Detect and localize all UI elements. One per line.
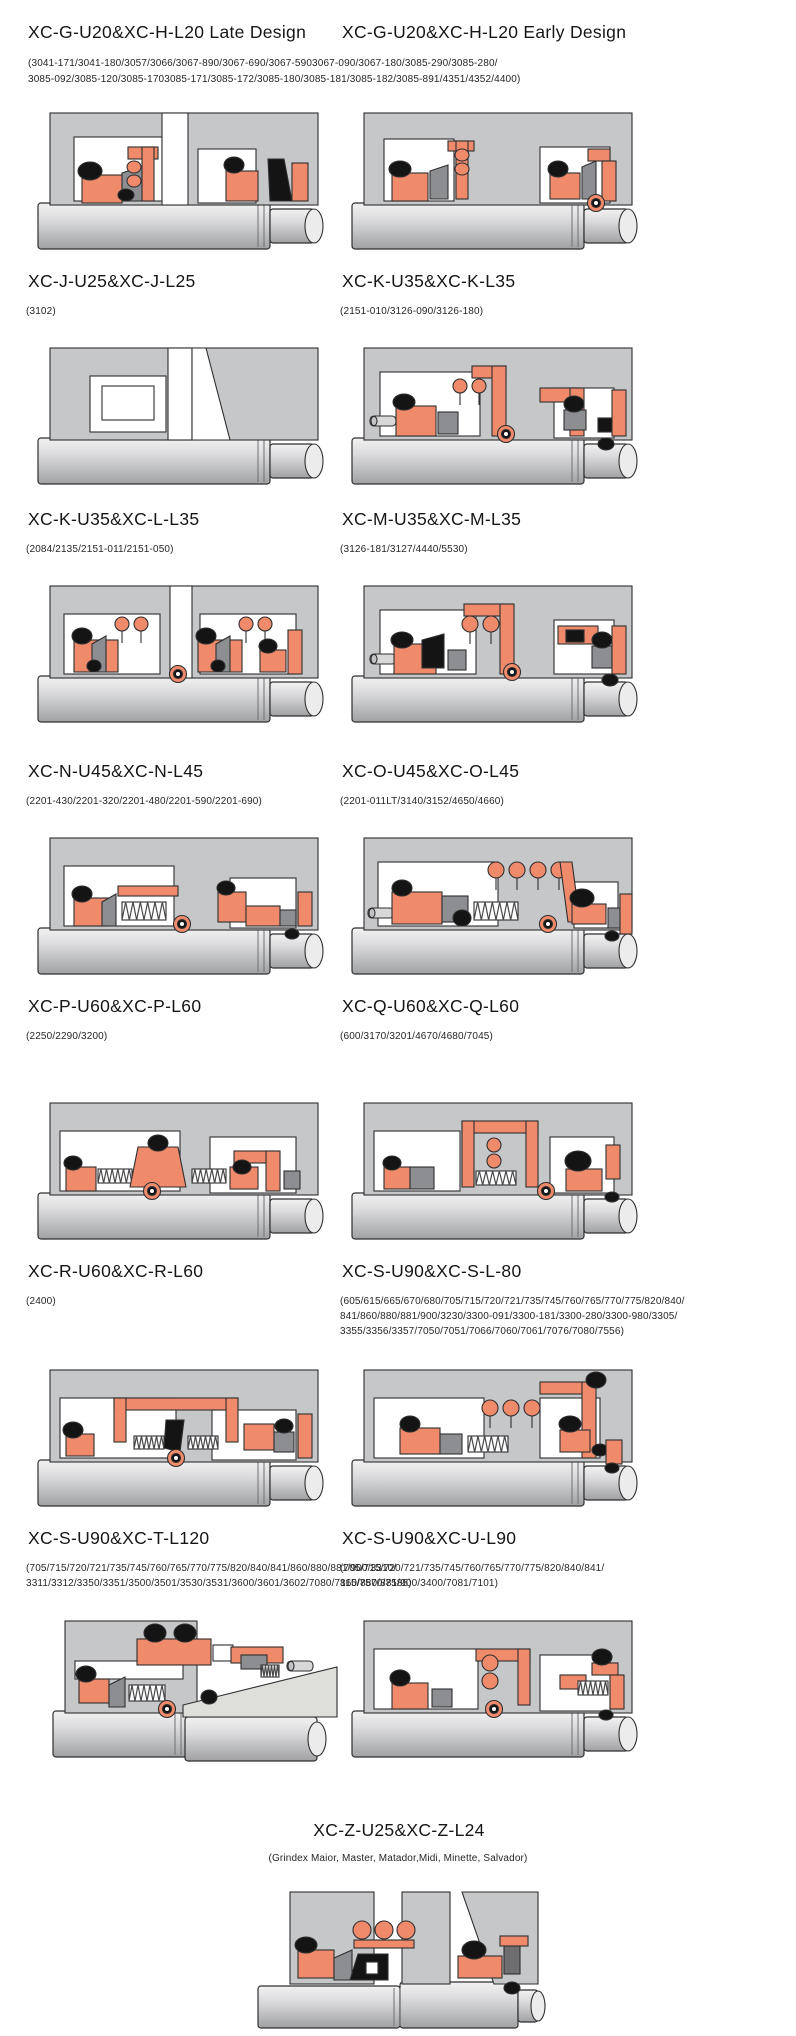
catalog-entry: XC-O-U45&XC-O-L45 (2201-011LT/3140/3152/… — [340, 747, 782, 982]
catalog-row: XC-N-U45&XC-N-L45 (2201-430/2201-320/220… — [0, 747, 796, 982]
model-numbers-line: (2250/2290/3200) — [26, 1029, 107, 1044]
shared-model-number-list: (3041-171/3041-180/3057/3066/3067-890/30… — [0, 56, 796, 87]
entry-title: XC-P-U60&XC-P-L60 — [28, 996, 201, 1017]
seal-cross-section-diagram-j — [30, 332, 330, 492]
entry-title: XC-N-U45&XC-N-L45 — [28, 761, 203, 782]
seal-cross-section-diagram-n — [30, 822, 330, 982]
model-number-list: (3102) — [26, 304, 56, 322]
seal-cross-section-diagram-r — [30, 1354, 330, 1514]
entry-title: XC-O-U45&XC-O-L45 — [342, 761, 519, 782]
model-number-list: (Grindex Maior, Master, Matador,Midi, Mi… — [268, 1851, 527, 1866]
seal-cross-section-diagram-u — [344, 1605, 644, 1765]
seal-cross-section-diagram-p — [30, 1087, 330, 1247]
model-number-list: (2201-011LT/3140/3152/4650/4660) — [340, 794, 504, 812]
catalog-entry: XC-R-U60&XC-R-L60 (2400) — [26, 1247, 340, 1514]
seal-cross-section-diagram-k — [344, 332, 644, 492]
entry-title: XC-S-U90&XC-T-L120 — [28, 1528, 209, 1549]
model-numbers-line: (3041-171/3041-180/3057/3066/3067-890/30… — [28, 56, 796, 72]
model-number-list: (605/615/665/670/680/705/715/720/721/735… — [340, 1294, 685, 1344]
entry-title: XC-R-U60&XC-R-L60 — [28, 1261, 203, 1282]
model-number-list: (2400) — [26, 1294, 56, 1344]
model-number-list: (3126-181/3127/4440/5530) — [340, 542, 468, 560]
model-numbers-line: (2201-430/2201-320/2201-480/2201-590/220… — [26, 794, 262, 809]
catalog-row: XC-P-U60&XC-P-L60 (2250/2290/3200) XC-Q-… — [0, 982, 796, 1247]
seal-cross-section-diagram-m — [344, 570, 644, 730]
model-number-list: (2250/2290/3200) — [26, 1029, 107, 1077]
catalog-entry: XC-P-U60&XC-P-L60 (2250/2290/3200) — [26, 982, 340, 1247]
catalog-entry: XC-S-U90&XC-T-L120 (705/715/720/721/735/… — [26, 1514, 340, 1804]
catalog-entry: XC-J-U25&XC-J-L25 (3102) — [26, 257, 340, 495]
model-numbers-line: (2084/2135/2151-011/2151-050) — [26, 542, 174, 557]
entry-title: XC-S-U90&XC-S-L-80 — [342, 1261, 521, 1282]
bottom-entry: XC-Z-U25&XC-Z-L24 (Grindex Maior, Master… — [0, 1804, 796, 2036]
model-numbers-line: 841/860/880/881/900/3230/3300-091/3300-1… — [340, 1309, 685, 1324]
seal-cross-section-diagram-o — [344, 822, 644, 982]
model-numbers-line: (2400) — [26, 1294, 56, 1309]
model-numbers-line: 860/880/881/900/3400/7081/7101) — [340, 1576, 604, 1591]
model-numbers-line: (705/715/720/721/735/745/760/765/770/775… — [340, 1561, 604, 1576]
seal-cross-section-diagram-z — [250, 1876, 550, 2036]
seal-cross-section-diagram-g-early — [344, 97, 782, 257]
title-row: XC-G-U20&XC-H-L20 Late DesignXC-G-U20&XC… — [0, 8, 796, 43]
seal-cross-section-diagram-g-late — [30, 97, 340, 257]
model-numbers-line: (2151-010/3126-090/3126-180) — [340, 304, 483, 319]
model-number-list: (2201-430/2201-320/2201-480/2201-590/220… — [26, 794, 262, 812]
catalog-entry: XC-Z-U25&XC-Z-L24 (Grindex Maior, Master… — [246, 1804, 550, 2036]
seal-cross-section-diagram-kl — [30, 570, 330, 730]
model-numbers-line: (2201-011LT/3140/3152/4650/4660) — [340, 794, 504, 809]
catalog-row: XC-S-U90&XC-T-L120 (705/715/720/721/735/… — [0, 1514, 796, 1804]
diagram-row — [0, 87, 796, 257]
entry-title: XC-K-U35&XC-K-L35 — [342, 271, 515, 292]
entry-title: XC-K-U35&XC-L-L35 — [28, 509, 199, 530]
seal-cross-section-diagram-t — [30, 1605, 360, 1765]
entry-title: XC-Q-U60&XC-Q-L60 — [342, 996, 519, 1017]
model-numbers-line: (3102) — [26, 304, 56, 319]
entry-title: XC-M-U35&XC-M-L35 — [342, 509, 521, 530]
model-numbers-line: (Grindex Maior, Master, Matador,Midi, Mi… — [268, 1851, 527, 1866]
catalog-entry: XC-M-U35&XC-M-L35 (3126-181/3127/4440/55… — [340, 495, 782, 747]
entry-title: XC-Z-U25&XC-Z-L24 — [313, 1820, 484, 1841]
model-number-list: (2084/2135/2151-011/2151-050) — [26, 542, 174, 560]
seal-cross-section-diagram-q — [344, 1087, 644, 1247]
catalog-row: XC-J-U25&XC-J-L25 (3102) XC-K-U35&XC-K-L… — [0, 257, 796, 495]
catalog-row: XC-K-U35&XC-L-L35 (2084/2135/2151-011/21… — [0, 495, 796, 747]
model-number-list: (600/3170/3201/4670/4680/7045) — [340, 1029, 493, 1077]
model-numbers-line: (600/3170/3201/4670/4680/7045) — [340, 1029, 493, 1044]
model-numbers-line: 3355/3356/3357/7050/7051/7066/7060/7061/… — [340, 1324, 685, 1339]
model-numbers-line: 3085-092/3085-120/3085-1703085-171/3085-… — [28, 72, 796, 88]
catalog-entry: XC-Q-U60&XC-Q-L60 (600/3170/3201/4670/46… — [340, 982, 782, 1247]
entry-title: XC-G-U20&XC-H-L20 Late Design — [28, 22, 340, 43]
catalog-entry: XC-S-U90&XC-U-L90 (705/715/720/721/735/7… — [340, 1514, 782, 1804]
catalog-entry: XC-N-U45&XC-N-L45 (2201-430/2201-320/220… — [26, 747, 340, 982]
model-numbers-line: (3126-181/3127/4440/5530) — [340, 542, 468, 557]
entry-title: XC-S-U90&XC-U-L90 — [342, 1528, 516, 1549]
catalog-entry: XC-S-U90&XC-S-L-80 (605/615/665/670/680/… — [340, 1247, 782, 1514]
catalog-row: XC-R-U60&XC-R-L60 (2400) XC-S-U90&XC-S-L… — [0, 1247, 796, 1514]
catalog-entry: XC-K-U35&XC-K-L35 (2151-010/3126-090/312… — [340, 257, 782, 495]
catalog-entry: XC-K-U35&XC-L-L35 (2084/2135/2151-011/21… — [26, 495, 340, 747]
model-numbers-line: (605/615/665/670/680/705/715/720/721/735… — [340, 1294, 685, 1309]
catalog-page: XC-G-U20&XC-H-L20 Late DesignXC-G-U20&XC… — [0, 0, 796, 2036]
entry-title: XC-G-U20&XC-H-L20 Early Design — [342, 22, 782, 43]
model-number-list: (705/715/720/721/735/745/760/765/770/775… — [340, 1561, 604, 1595]
entry-title: XC-J-U25&XC-J-L25 — [28, 271, 196, 292]
seal-cross-section-diagram-s — [344, 1354, 644, 1514]
model-number-list: (2151-010/3126-090/3126-180) — [340, 304, 483, 322]
